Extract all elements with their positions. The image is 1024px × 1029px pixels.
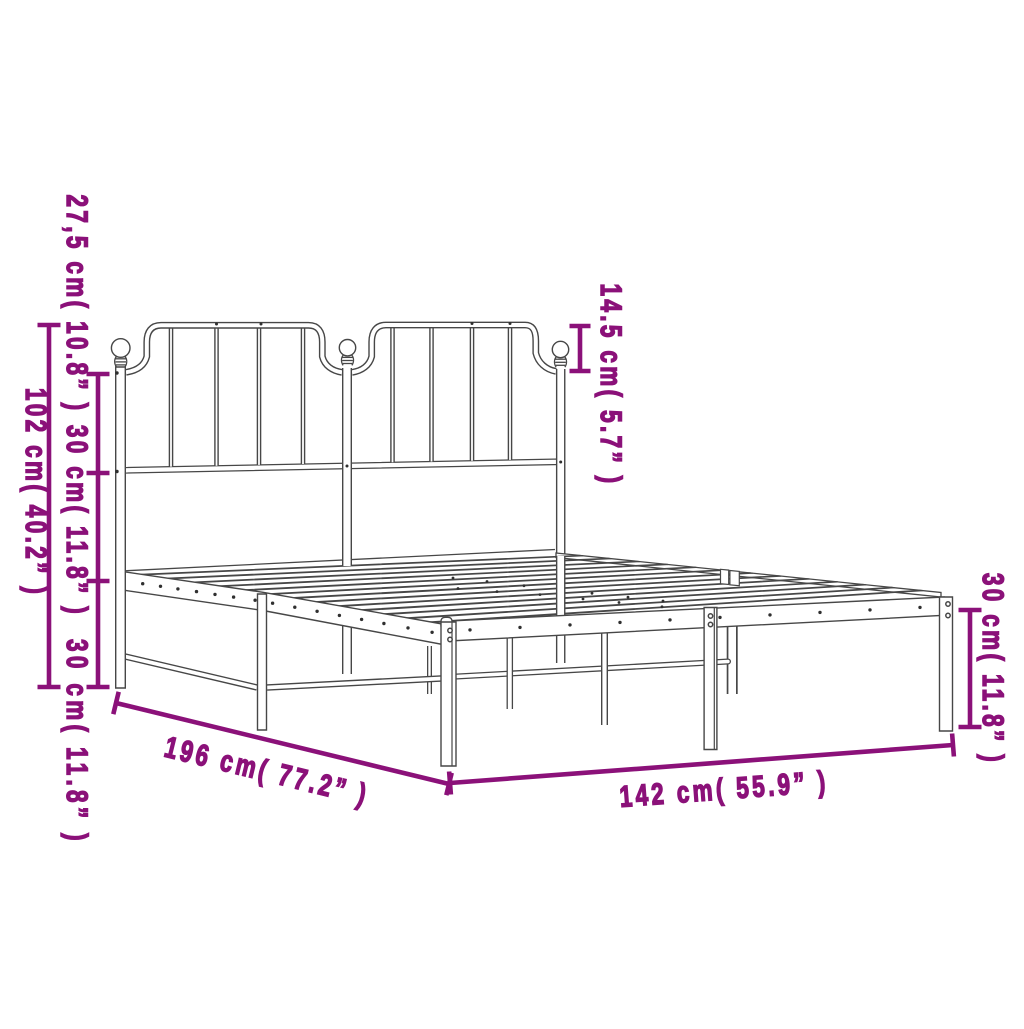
svg-text:30 cm( 11.8” ): 30 cm( 11.8” ) (60, 639, 94, 845)
svg-text:27,5 cm( 10.8” ): 27,5 cm( 10.8” ) (60, 195, 94, 414)
svg-text:30 cm( 11.8” ): 30 cm( 11.8” ) (976, 573, 1010, 765)
svg-text:30 cm( 11.8” ): 30 cm( 11.8” ) (60, 425, 94, 617)
svg-text:102 cm( 40.2” ): 102 cm( 40.2” ) (19, 388, 53, 597)
svg-text:14.5 cm( 5.7” ): 14.5 cm( 5.7” ) (594, 283, 628, 486)
